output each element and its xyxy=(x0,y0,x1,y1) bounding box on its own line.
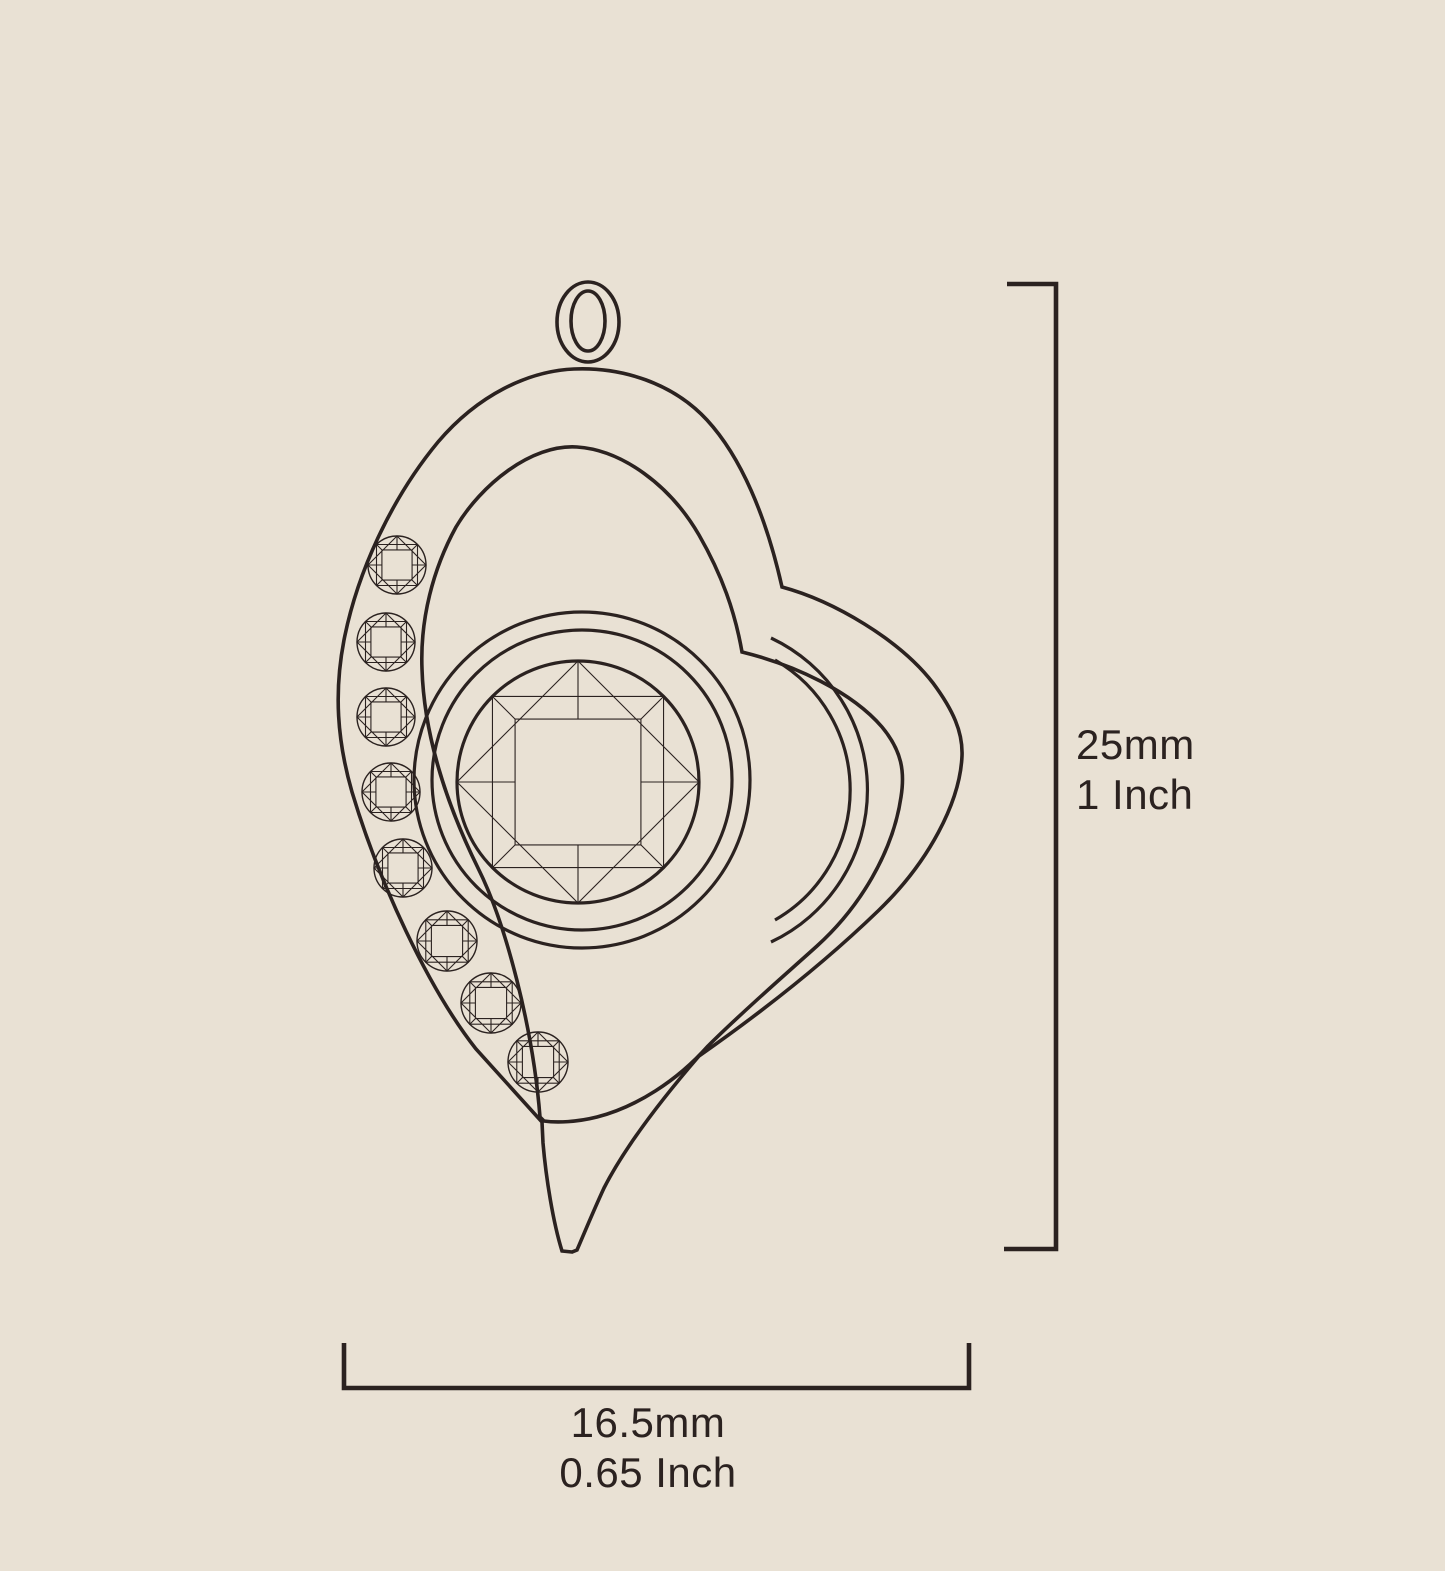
side-stone-1 xyxy=(368,536,426,594)
height-dimension-bracket xyxy=(1004,284,1056,1249)
side-stone-5 xyxy=(374,839,432,897)
bezel-inner-ring xyxy=(432,630,732,930)
pendant-spec-sheet: 25mm 1 Inch 16.5mm 0.65 Inch xyxy=(0,0,1445,1571)
width-metric-value: 16.5mm xyxy=(448,1398,848,1448)
side-stone-6 xyxy=(417,911,477,971)
side-stone-2 xyxy=(357,613,415,671)
height-dimension-label: 25mm 1 Inch xyxy=(1076,720,1195,820)
bail-inner-oval xyxy=(571,291,605,351)
bail-loop xyxy=(557,282,619,362)
height-metric-value: 25mm xyxy=(1076,720,1195,770)
bezel-rim-arc-outer xyxy=(771,638,867,942)
side-stone-3 xyxy=(357,688,415,746)
side-stone-8 xyxy=(508,1032,568,1092)
width-dimension-label: 16.5mm 0.65 Inch xyxy=(448,1398,848,1498)
center-stone-facets xyxy=(457,661,699,903)
outer-heart-outline xyxy=(338,369,962,1252)
inner-heart-outline xyxy=(422,447,903,1122)
side-stone-7 xyxy=(461,973,521,1033)
center-stone xyxy=(457,661,699,903)
width-dimension-bracket xyxy=(344,1343,969,1388)
pendant-line-drawing xyxy=(0,0,1445,1571)
side-stone-4 xyxy=(362,763,420,821)
width-imperial-value: 0.65 Inch xyxy=(448,1448,848,1498)
height-imperial-value: 1 Inch xyxy=(1076,770,1195,820)
